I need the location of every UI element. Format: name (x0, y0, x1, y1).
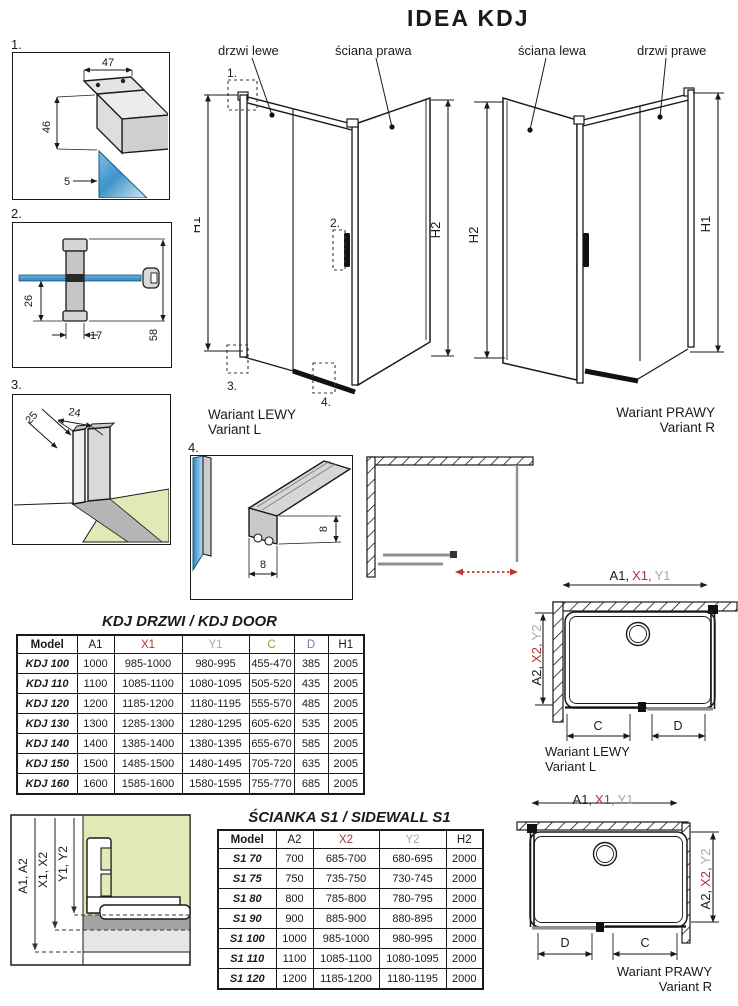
value-cell: 730-745 (379, 869, 446, 889)
value-cell: 1080-1095 (379, 949, 446, 969)
wall-top (517, 822, 688, 830)
value-cell: 2005 (328, 734, 364, 754)
value-cell: 605-620 (249, 714, 294, 734)
threshold-rail (585, 371, 638, 381)
screw-icon (96, 83, 100, 87)
handle-knob (63, 239, 87, 321)
table-row: KDJ 11011001085-11001080-1095505-5204352… (17, 674, 364, 694)
plan-right-width-label: A1,X1,Y1 (543, 792, 663, 807)
model-cell: KDJ 130 (17, 714, 77, 734)
value-cell: 2005 (328, 714, 364, 734)
header-row: ModelA1X1Y1CDH1 (17, 635, 364, 654)
value-cell: 1385-1400 (114, 734, 182, 754)
plan-left-depth-label: A2,X2,Y2 (529, 611, 545, 699)
value-cell: 1285-1300 (114, 714, 182, 734)
value-cell: 1300 (77, 714, 114, 734)
x2-label: X2, (698, 867, 713, 887)
h1-dim-label: H1 (698, 216, 713, 233)
table-row: KDJ 13013001285-13001280-1295605-6205352… (17, 714, 364, 734)
door-handle (583, 233, 589, 267)
dim-24: 24 (67, 406, 81, 420)
corner-bracket (708, 605, 718, 614)
detail-1-drawing: 47 46 5 (13, 53, 168, 198)
wall-top (367, 457, 533, 465)
door-panel (238, 92, 358, 392)
value-cell: 1000 (276, 929, 313, 949)
value-cell: 735-750 (313, 869, 379, 889)
value-cell: 505-520 (249, 674, 294, 694)
plan-right-caption-en: Variant R (659, 979, 712, 994)
a1-label: A1, (610, 568, 630, 583)
variant-left-diagram: drzwi lewe ściana prawa H1 H2 1. 2. 3. 4… (194, 40, 456, 440)
x2-label: X2, (529, 643, 544, 663)
dim-8-right: 8 (318, 526, 330, 532)
value-cell: 1085-1100 (313, 949, 379, 969)
x1-x2-label: X1, X2 (36, 852, 50, 888)
shower-tray (530, 832, 687, 927)
value-cell: 1485-1500 (114, 754, 182, 774)
cd-dims (538, 933, 677, 960)
value-cell: 980-995 (182, 654, 249, 674)
value-cell: 885-900 (313, 909, 379, 929)
model-cell: S1 120 (218, 969, 276, 990)
value-cell: 1280-1295 (182, 714, 249, 734)
value-cell: 435 (294, 674, 328, 694)
plan-variant-left: C D Wariant LEWY Variant L (520, 558, 738, 778)
glass-panel (99, 151, 147, 198)
value-cell: 800 (276, 889, 313, 909)
value-cell: 2000 (446, 949, 483, 969)
door-table: ModelA1X1Y1CDH1 KDJ 1001000985-1000980-9… (16, 634, 365, 795)
model-cell: S1 110 (218, 949, 276, 969)
value-cell: 535 (294, 714, 328, 734)
detail-1-box: 47 46 5 (12, 52, 170, 200)
wall-left-label: ściana lewa (518, 43, 587, 58)
value-cell: 880-895 (379, 909, 446, 929)
detail-2-drawing: 26 17 58 (13, 223, 170, 366)
handle-icon (638, 702, 646, 712)
plan-right-depth-label: A2,X2,Y2 (698, 835, 714, 923)
value-cell: 2000 (446, 869, 483, 889)
value-cell: 2000 (446, 849, 483, 869)
table-row: S1 80800785-800780-7952000 (218, 889, 483, 909)
a1-a2-label: A1, A2 (16, 858, 30, 894)
table-row: S1 11011001085-11001080-10952000 (218, 949, 483, 969)
marker-1: 1. (227, 66, 237, 80)
value-cell: 1200 (77, 694, 114, 714)
dim-26: 26 (23, 295, 35, 307)
column-header: C (249, 635, 294, 654)
detail-3-drawing: 24 25 (13, 395, 169, 543)
catalog-page: IDEA KDJ 1. (0, 0, 738, 1006)
h2-dim-label: H2 (466, 227, 481, 244)
value-cell: 2005 (328, 774, 364, 795)
variant-left-caption-en: Variant L (208, 422, 262, 437)
a2-label: A2, (698, 890, 713, 910)
a1-label: A1, (573, 792, 593, 807)
value-cell: 2005 (328, 694, 364, 714)
value-cell: 1585-1600 (114, 774, 182, 795)
model-cell: S1 80 (218, 889, 276, 909)
value-cell: 1180-1195 (182, 694, 249, 714)
cd-dims (567, 714, 705, 741)
value-cell: 900 (276, 909, 313, 929)
value-cell: 1085-1100 (114, 674, 182, 694)
value-cell: 1380-1395 (182, 734, 249, 754)
table-row: S1 12012001185-12001180-11952000 (218, 969, 483, 990)
column-header: A2 (276, 830, 313, 849)
top-rail-profile (84, 77, 168, 153)
table-row: KDJ 1001000985-1000980-995455-4703852005 (17, 654, 364, 674)
value-cell: 750 (276, 869, 313, 889)
model-cell: S1 70 (218, 849, 276, 869)
table-row: KDJ 14014001385-14001380-1395655-6705852… (17, 734, 364, 754)
plan-right-caption-pl: Wariant PRAWY (617, 964, 712, 979)
value-cell: 2005 (328, 654, 364, 674)
value-cell: 1600 (77, 774, 114, 795)
value-cell: 455-470 (249, 654, 294, 674)
shower-tray (565, 612, 715, 708)
value-cell: 1100 (77, 674, 114, 694)
door-left-label: drzwi lewe (218, 43, 279, 58)
value-cell: 700 (276, 849, 313, 869)
column-header: Y1 (182, 635, 249, 654)
value-cell: 1080-1095 (182, 674, 249, 694)
value-cell: 2000 (446, 969, 483, 990)
dim-25: 25 (23, 409, 40, 426)
column-header: Y2 (379, 830, 446, 849)
value-cell: 780-795 (379, 889, 446, 909)
bottom-seal-gasket (249, 461, 350, 545)
model-cell: KDJ 100 (17, 654, 77, 674)
d-dim-label: D (560, 936, 569, 950)
value-cell: 1580-1595 (182, 774, 249, 795)
side-wall-panel (503, 98, 577, 380)
model-cell: S1 90 (218, 909, 276, 929)
value-cell: 585 (294, 734, 328, 754)
column-header: X2 (313, 830, 379, 849)
detail-2-box: 26 17 58 (12, 222, 172, 368)
dimensions (33, 239, 165, 339)
detail-4-box: 8 8 (190, 455, 353, 600)
model-cell: S1 100 (218, 929, 276, 949)
door-table-title: KDJ DRZWI / KDJ DOOR (16, 613, 363, 630)
dim-58: 58 (148, 329, 160, 341)
sidewall-table: ModelA2X2Y2H2 S1 70700685-700680-6952000… (217, 829, 484, 990)
plan-left-width-label: A1,X1,Y1 (560, 568, 720, 583)
dim-17: 17 (90, 330, 102, 342)
value-cell: 1100 (276, 949, 313, 969)
value-cell: 385 (294, 654, 328, 674)
sliding-schematic (365, 450, 540, 585)
side-wall-panel (358, 98, 430, 385)
value-cell: 1180-1195 (379, 969, 446, 990)
y2-label: Y2 (529, 625, 544, 641)
a2-label: A2, (529, 666, 544, 686)
column-header: H2 (446, 830, 483, 849)
value-cell: 655-670 (249, 734, 294, 754)
column-header: H1 (328, 635, 364, 654)
model-cell: KDJ 150 (17, 754, 77, 774)
c-dim-label: C (593, 719, 602, 733)
table-row: S1 90900885-900880-8952000 (218, 909, 483, 929)
dim-8-bottom: 8 (260, 559, 266, 571)
value-cell: 685-700 (313, 849, 379, 869)
wall-profile (73, 423, 114, 504)
table-row: S1 1001000985-1000980-9952000 (218, 929, 483, 949)
header-row: ModelA2X2Y2H2 (218, 830, 483, 849)
tray-edge-band (83, 930, 190, 952)
wall-left (553, 602, 563, 722)
model-cell: KDJ 160 (17, 774, 77, 795)
value-cell: 755-770 (249, 774, 294, 795)
slide-direction-arrow (455, 569, 518, 576)
detail-1-label: 1. (11, 37, 22, 52)
dim-5: 5 (64, 176, 70, 188)
value-cell: 1400 (77, 734, 114, 754)
page-title: IDEA KDJ (407, 5, 530, 32)
value-cell: 2000 (446, 889, 483, 909)
value-cell: 680-695 (379, 849, 446, 869)
threshold-rail (293, 371, 355, 392)
door-right-label: drzwi prawe (637, 43, 706, 58)
x1-label: X1, (632, 568, 652, 583)
variant-right-diagram: ściana lewa drzwi prawe H2 H1 Wariant PR… (462, 40, 738, 440)
detail-3-label: 3. (11, 377, 22, 392)
value-cell: 1185-1200 (114, 694, 182, 714)
model-cell: KDJ 140 (17, 734, 77, 754)
y2-label: Y2 (698, 849, 713, 865)
value-cell: 2005 (328, 674, 364, 694)
detail-2-label: 2. (11, 206, 22, 221)
value-cell: 685 (294, 774, 328, 795)
column-header: Model (17, 635, 77, 654)
detail-4-drawing: 8 8 (191, 456, 351, 598)
plan-left-caption-pl: Wariant LEWY (545, 744, 630, 759)
detail-4-label: 4. (188, 440, 199, 455)
value-cell: 705-720 (249, 754, 294, 774)
value-cell: 2005 (328, 754, 364, 774)
marker-3: 3. (227, 379, 237, 393)
h1-dim-label: H1 (194, 217, 203, 234)
sidewall-table-title: ŚCIANKA S1 / SIDEWALL S1 (217, 809, 482, 826)
y1-label: Y1 (655, 568, 671, 583)
table-row: KDJ 15015001485-15001480-1495705-7206352… (17, 754, 364, 774)
wall-right-label: ściana prawa (335, 43, 412, 58)
variant-right-caption-en: Variant R (660, 420, 716, 435)
value-cell: 485 (294, 694, 328, 714)
column-header: X1 (114, 635, 182, 654)
value-cell: 635 (294, 754, 328, 774)
d-dim-label: D (673, 719, 682, 733)
column-header: A1 (77, 635, 114, 654)
value-cell: 980-995 (379, 929, 446, 949)
value-cell: 985-1000 (313, 929, 379, 949)
value-cell: 555-570 (249, 694, 294, 714)
value-cell: 1480-1495 (182, 754, 249, 774)
column-header: Model (218, 830, 276, 849)
handle-icon (450, 551, 457, 558)
c-dim-label: C (640, 936, 649, 950)
model-cell: KDJ 110 (17, 674, 77, 694)
dim-47: 47 (102, 57, 114, 69)
column-header: D (294, 635, 328, 654)
door-panel (574, 88, 694, 383)
corner-bracket (527, 824, 537, 833)
marker-4: 4. (321, 395, 331, 409)
value-cell: 785-800 (313, 889, 379, 909)
wall-section-diagram: A1, A2 X1, X2 Y1, Y2 (10, 812, 215, 997)
y1-label: Y1 (618, 792, 634, 807)
h2-dim-label: H2 (428, 222, 443, 239)
model-cell: KDJ 120 (17, 694, 77, 714)
wall-left (367, 457, 375, 577)
marker-2: 2. (330, 216, 340, 230)
table-row: S1 75750735-750730-7452000 (218, 869, 483, 889)
handle-icon (596, 922, 604, 932)
value-cell: 985-1000 (114, 654, 182, 674)
value-cell: 1000 (77, 654, 114, 674)
wall-anchor-end (143, 268, 159, 288)
value-cell: 1500 (77, 754, 114, 774)
value-cell: 2000 (446, 929, 483, 949)
dim-46: 46 (41, 121, 53, 133)
screw-icon (121, 79, 125, 83)
x1-label: X1, (595, 792, 615, 807)
value-cell: 1185-1200 (313, 969, 379, 990)
model-cell: S1 75 (218, 869, 276, 889)
variant-left-caption-pl: Wariant LEWY (208, 407, 296, 422)
table-row: KDJ 16016001585-16001580-1595755-7706852… (17, 774, 364, 795)
plan-left-caption-en: Variant L (545, 759, 596, 774)
value-cell: 2000 (446, 909, 483, 929)
value-cell: 1200 (276, 969, 313, 990)
table-row: S1 70700685-700680-6952000 (218, 849, 483, 869)
detail-3-box: 24 25 (12, 394, 171, 545)
variant-right-caption-pl: Wariant PRAWY (616, 405, 715, 420)
table-row: KDJ 12012001185-12001180-1195555-5704852… (17, 694, 364, 714)
y1-y2-label: Y1, Y2 (56, 846, 70, 882)
glass-panel (193, 456, 211, 570)
